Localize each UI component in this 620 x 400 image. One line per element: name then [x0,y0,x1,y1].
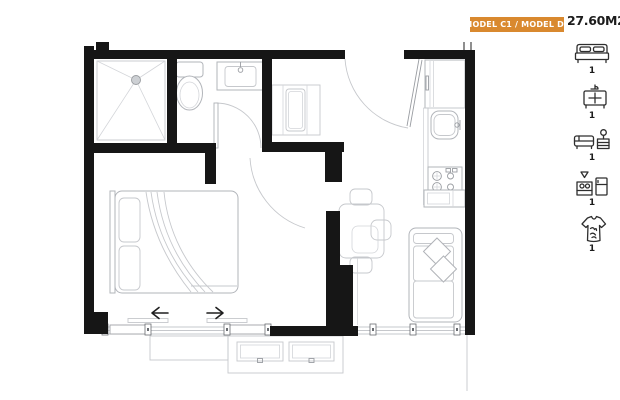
fridge [425,60,465,108]
toilet [176,62,203,110]
bed-icon [573,42,611,65]
bathroom-sink-vanity [217,62,263,90]
entry-door-arc [345,59,422,128]
floor-plan [0,0,620,400]
side-table [424,190,465,207]
legend-item-living-room: 1 [572,128,612,163]
furniture-legend: 1 1 1 [568,42,616,261]
shower-drain-icon [132,76,141,85]
balcony-planters [150,335,467,391]
tshirt-icon [576,215,608,243]
legend-count: 1 [589,66,595,76]
legend-item-bedroom: 1 [573,42,611,76]
bathroom-vanity-icon [577,83,607,110]
legend-count: 1 [589,111,595,121]
legend-count: 1 [589,244,595,254]
bed [110,191,238,293]
bathroom-door-arc [214,103,261,148]
legend-count: 1 [589,153,595,163]
legend-count: 1 [589,198,595,208]
area-label: 27.60M2 [567,13,620,28]
kitchen-sink [431,111,460,139]
model-badge: MODEL C1 / MODEL D2 [470,17,564,32]
sofa [409,228,462,322]
wall-ticks [464,42,471,50]
sliding-door-bedroom [108,319,270,335]
floor-plan-page: MODEL C1 / MODEL D2 27.60M2 1 1 [0,0,620,400]
shower [97,61,165,140]
legend-item-wardrobe: 1 [576,215,608,254]
legend-item-bathroom: 1 [577,83,607,121]
sofa-lamp-icon [572,128,612,152]
closet-washer [272,85,320,135]
kitchen-icon [574,170,610,197]
legend-item-kitchen: 1 [574,170,610,208]
slide-direction-arrows [152,308,223,319]
hall-door-arc [250,158,305,228]
